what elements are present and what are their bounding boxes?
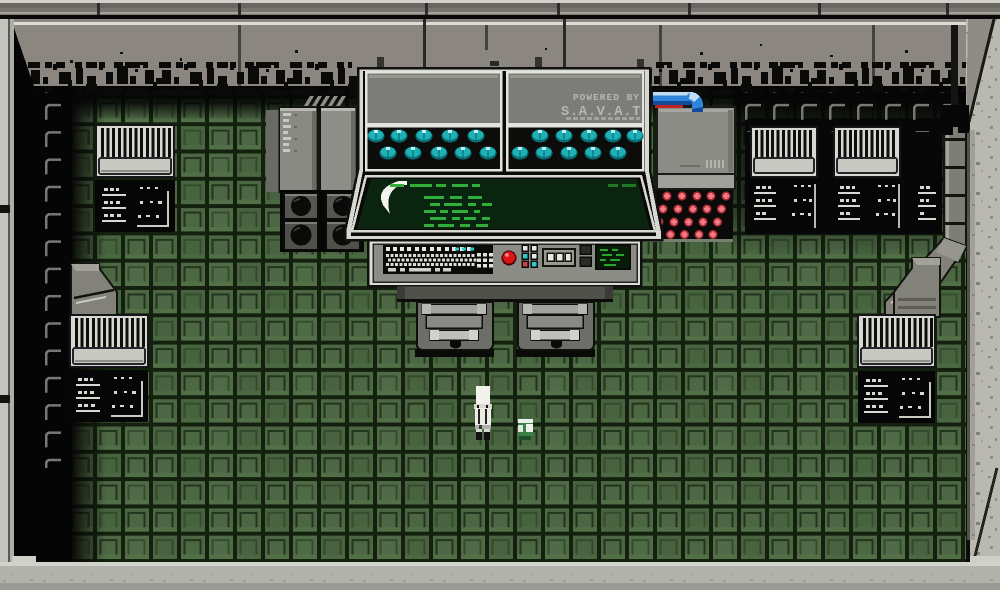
svg-text:S.A.V.A.T: S.A.V.A.T — [561, 104, 641, 120]
svg-text:POWERED BY: POWERED BY — [573, 92, 640, 103]
